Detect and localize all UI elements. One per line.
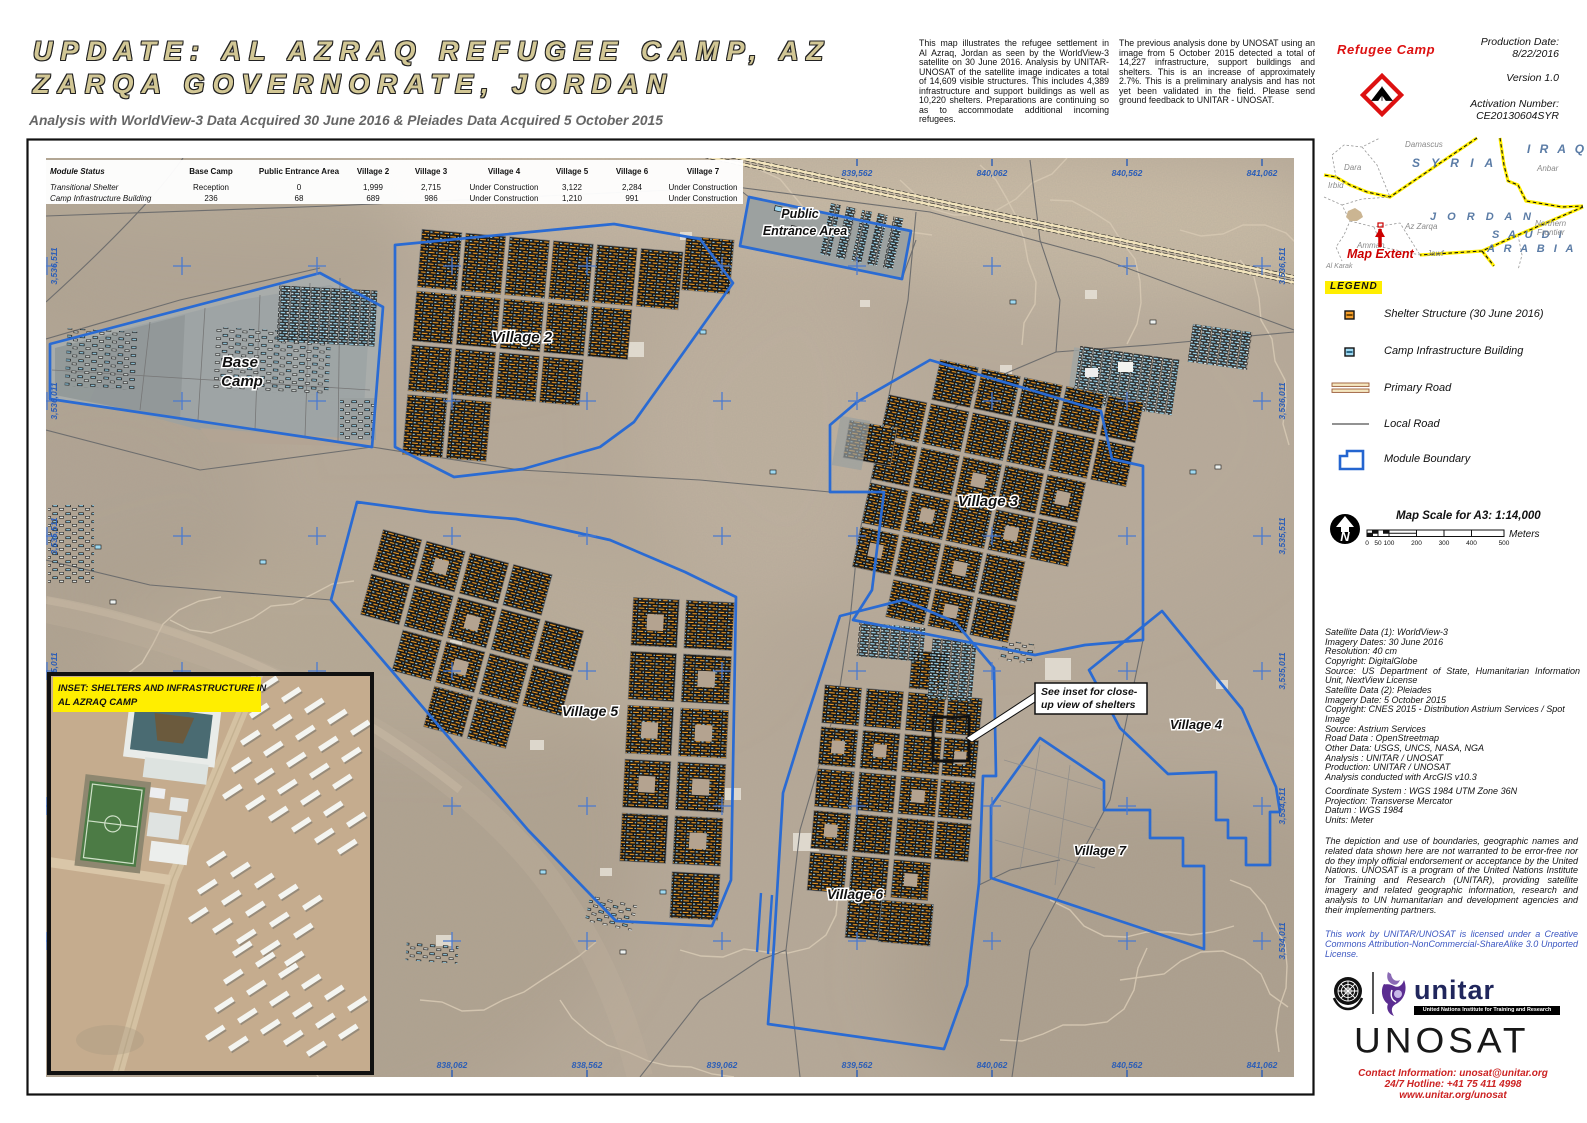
svg-text:Transitional Shelter: Transitional Shelter bbox=[50, 183, 119, 192]
svg-text:See inset for close-: See inset for close- bbox=[1041, 686, 1138, 698]
svg-text:838,562: 838,562 bbox=[572, 1060, 603, 1070]
svg-text:Village 2: Village 2 bbox=[357, 167, 390, 176]
svg-text:2,284: 2,284 bbox=[622, 183, 643, 192]
svg-text:3,535,511: 3,535,511 bbox=[49, 517, 59, 554]
svg-text:3,535,011: 3,535,011 bbox=[1277, 652, 1287, 689]
svg-text:Entrance Area: Entrance Area bbox=[763, 224, 847, 238]
svg-text:3,536,011: 3,536,011 bbox=[1277, 382, 1287, 419]
svg-text:838,062: 838,062 bbox=[437, 1060, 468, 1070]
svg-text:840,062: 840,062 bbox=[977, 168, 1008, 178]
svg-text:840,562: 840,562 bbox=[1112, 168, 1143, 178]
svg-text:Village 7: Village 7 bbox=[1074, 843, 1127, 858]
svg-text:689: 689 bbox=[366, 194, 380, 203]
svg-text:up view of shelters: up view of shelters bbox=[1041, 699, 1136, 711]
svg-text:839,562: 839,562 bbox=[842, 1060, 873, 1070]
svg-text:Village 3: Village 3 bbox=[958, 493, 1019, 510]
svg-text:986: 986 bbox=[424, 194, 438, 203]
svg-text:0: 0 bbox=[297, 183, 302, 192]
svg-text:3,536,011: 3,536,011 bbox=[49, 382, 59, 419]
svg-text:839,062: 839,062 bbox=[707, 1060, 738, 1070]
svg-text:Base Camp: Base Camp bbox=[189, 167, 233, 176]
svg-text:Reception: Reception bbox=[193, 183, 229, 192]
svg-text:Village 5: Village 5 bbox=[556, 167, 589, 176]
svg-text:Public Entrance Area: Public Entrance Area bbox=[259, 167, 340, 176]
svg-text:841,062: 841,062 bbox=[1247, 168, 1278, 178]
svg-text:840,062: 840,062 bbox=[977, 1060, 1008, 1070]
svg-text:Public: Public bbox=[781, 207, 819, 221]
svg-text:3,536,511: 3,536,511 bbox=[1277, 247, 1287, 284]
svg-text:839,562: 839,562 bbox=[842, 168, 873, 178]
svg-text:3,122: 3,122 bbox=[562, 183, 583, 192]
svg-text:68: 68 bbox=[295, 194, 304, 203]
svg-text:991: 991 bbox=[625, 194, 639, 203]
svg-text:Village 6: Village 6 bbox=[616, 167, 649, 176]
svg-text:Under Construction: Under Construction bbox=[470, 183, 539, 192]
svg-text:3,534,511: 3,534,511 bbox=[1277, 787, 1287, 824]
svg-text:3,534,011: 3,534,011 bbox=[1277, 922, 1287, 959]
svg-text:Village 3: Village 3 bbox=[415, 167, 448, 176]
svg-text:Village 4: Village 4 bbox=[1170, 717, 1223, 732]
svg-text:Base: Base bbox=[222, 354, 258, 371]
svg-text:Camp Infrastructure Building: Camp Infrastructure Building bbox=[50, 194, 152, 203]
svg-text:840,562: 840,562 bbox=[1112, 1060, 1143, 1070]
svg-text:1,999: 1,999 bbox=[363, 183, 384, 192]
svg-text:Module Status: Module Status bbox=[50, 167, 105, 176]
svg-text:Village 4: Village 4 bbox=[488, 167, 521, 176]
svg-text:236: 236 bbox=[204, 194, 218, 203]
svg-text:Under Construction: Under Construction bbox=[470, 194, 539, 203]
svg-text:INSET: SHELTERS AND INFRASTRUC: INSET: SHELTERS AND INFRASTRUCTURE IN bbox=[58, 683, 267, 694]
svg-text:1,210: 1,210 bbox=[562, 194, 583, 203]
svg-text:Camp: Camp bbox=[221, 373, 263, 390]
svg-text:Under Construction: Under Construction bbox=[669, 183, 738, 192]
svg-text:Under Construction: Under Construction bbox=[669, 194, 738, 203]
svg-text:3,536,511: 3,536,511 bbox=[49, 247, 59, 284]
svg-text:AL AZRAQ CAMP: AL AZRAQ CAMP bbox=[57, 697, 138, 708]
svg-text:3,535,511: 3,535,511 bbox=[1277, 517, 1287, 554]
svg-text:Village 6: Village 6 bbox=[827, 886, 884, 902]
svg-text:841,062: 841,062 bbox=[1247, 1060, 1278, 1070]
svg-text:Village 7: Village 7 bbox=[687, 167, 720, 176]
svg-text:2,715: 2,715 bbox=[421, 183, 442, 192]
svg-text:Village 5: Village 5 bbox=[562, 703, 619, 719]
svg-text:Village 2: Village 2 bbox=[492, 329, 553, 346]
